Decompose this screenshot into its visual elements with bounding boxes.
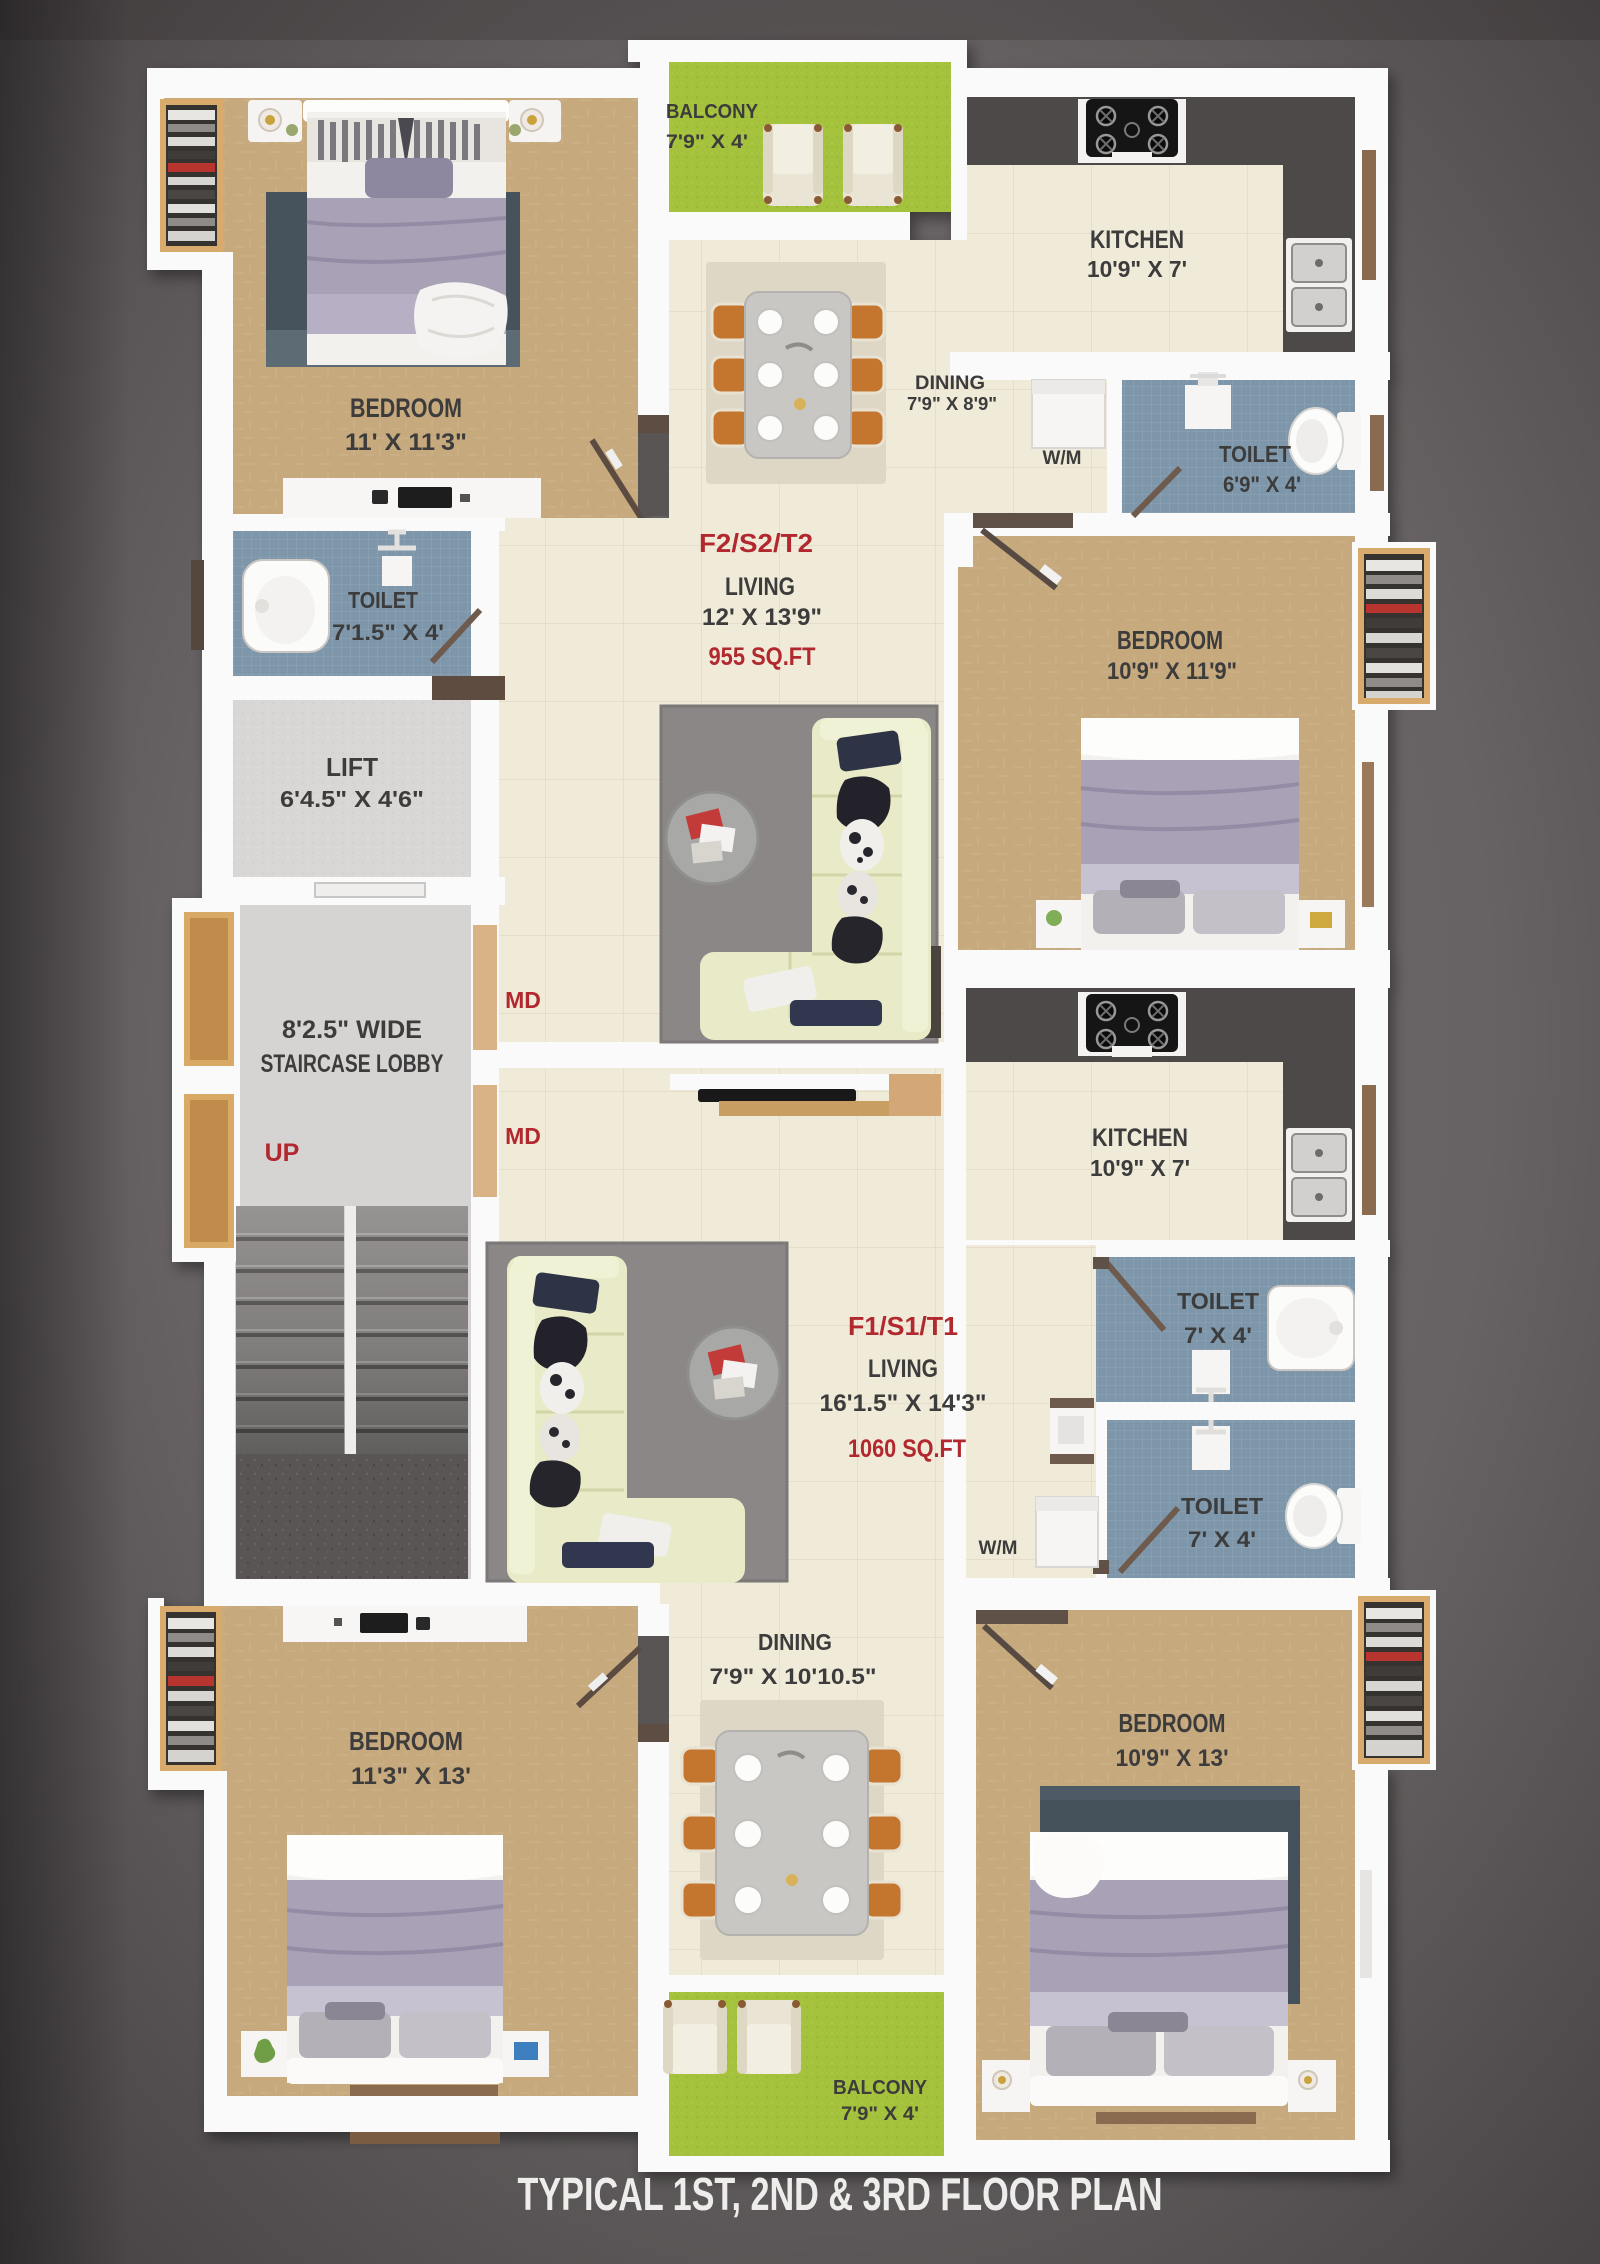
svg-text:11'3" X 13': 11'3" X 13': [351, 1763, 471, 1790]
svg-text:7' X 4': 7' X 4': [1188, 1527, 1256, 1552]
svg-text:955 SQ.FT: 955 SQ.FT: [709, 643, 816, 671]
svg-text:10'9" X 7': 10'9" X 7': [1090, 1155, 1190, 1181]
svg-text:LIFT: LIFT: [326, 752, 378, 782]
svg-text:TOILET: TOILET: [1177, 1288, 1259, 1314]
svg-text:7'9" X 8'9": 7'9" X 8'9": [907, 394, 997, 414]
svg-text:BEDROOM: BEDROOM: [350, 393, 462, 423]
svg-text:7'9" X 4': 7'9" X 4': [841, 2104, 919, 2125]
svg-text:16'1.5" X 14'3": 16'1.5" X 14'3": [820, 1390, 987, 1417]
svg-text:LIVING: LIVING: [725, 573, 795, 601]
svg-text:W/M: W/M: [1042, 448, 1081, 469]
svg-text:KITCHEN: KITCHEN: [1092, 1124, 1188, 1152]
svg-text:11' X 11'3": 11' X 11'3": [345, 429, 467, 456]
svg-text:7' X 4': 7' X 4': [1184, 1323, 1252, 1348]
svg-text:UP: UP: [265, 1139, 300, 1167]
svg-text:7'9" X 4': 7'9" X 4': [666, 132, 748, 153]
svg-text:BEDROOM: BEDROOM: [1117, 625, 1223, 655]
svg-text:TYPICAL 1ST, 2ND & 3RD FLOOR P: TYPICAL 1ST, 2ND & 3RD FLOOR PLAN: [518, 2168, 1163, 2220]
svg-text:BALCONY: BALCONY: [666, 101, 759, 123]
svg-text:1060 SQ.FT: 1060 SQ.FT: [848, 1435, 966, 1463]
svg-text:W/M: W/M: [978, 1538, 1017, 1559]
svg-text:TOILET: TOILET: [1219, 441, 1291, 467]
svg-text:10'9" X 13': 10'9" X 13': [1116, 1745, 1229, 1772]
svg-text:DINING: DINING: [758, 1629, 832, 1655]
svg-text:10'9" X 7': 10'9" X 7': [1087, 256, 1187, 282]
svg-text:TOILET: TOILET: [348, 587, 418, 613]
svg-text:BALCONY: BALCONY: [833, 2077, 928, 2099]
svg-text:KITCHEN: KITCHEN: [1090, 226, 1184, 254]
svg-text:6'9" X 4': 6'9" X 4': [1223, 472, 1301, 497]
svg-text:F1/S1/T1: F1/S1/T1: [848, 1311, 958, 1341]
svg-text:7'1.5" X 4': 7'1.5" X 4': [332, 620, 444, 645]
svg-text:7'9" X 10'10.5": 7'9" X 10'10.5": [710, 1664, 877, 1689]
svg-text:12' X 13'9": 12' X 13'9": [702, 604, 822, 631]
svg-text:BEDROOM: BEDROOM: [1119, 1708, 1226, 1738]
svg-text:F2/S2/T2: F2/S2/T2: [699, 528, 813, 558]
svg-text:LIVING: LIVING: [868, 1355, 938, 1383]
svg-text:6'4.5" X 4'6": 6'4.5" X 4'6": [280, 786, 424, 812]
svg-text:TOILET: TOILET: [1181, 1493, 1263, 1519]
svg-text:10'9" X 11'9": 10'9" X 11'9": [1107, 658, 1237, 685]
svg-text:DINING: DINING: [915, 373, 985, 394]
svg-text:STAIRCASE LOBBY: STAIRCASE LOBBY: [261, 1050, 444, 1078]
svg-text:MD: MD: [505, 987, 541, 1013]
svg-text:MD: MD: [505, 1123, 541, 1149]
svg-text:BEDROOM: BEDROOM: [349, 1726, 463, 1756]
svg-text:8'2.5" WIDE: 8'2.5" WIDE: [282, 1016, 422, 1044]
